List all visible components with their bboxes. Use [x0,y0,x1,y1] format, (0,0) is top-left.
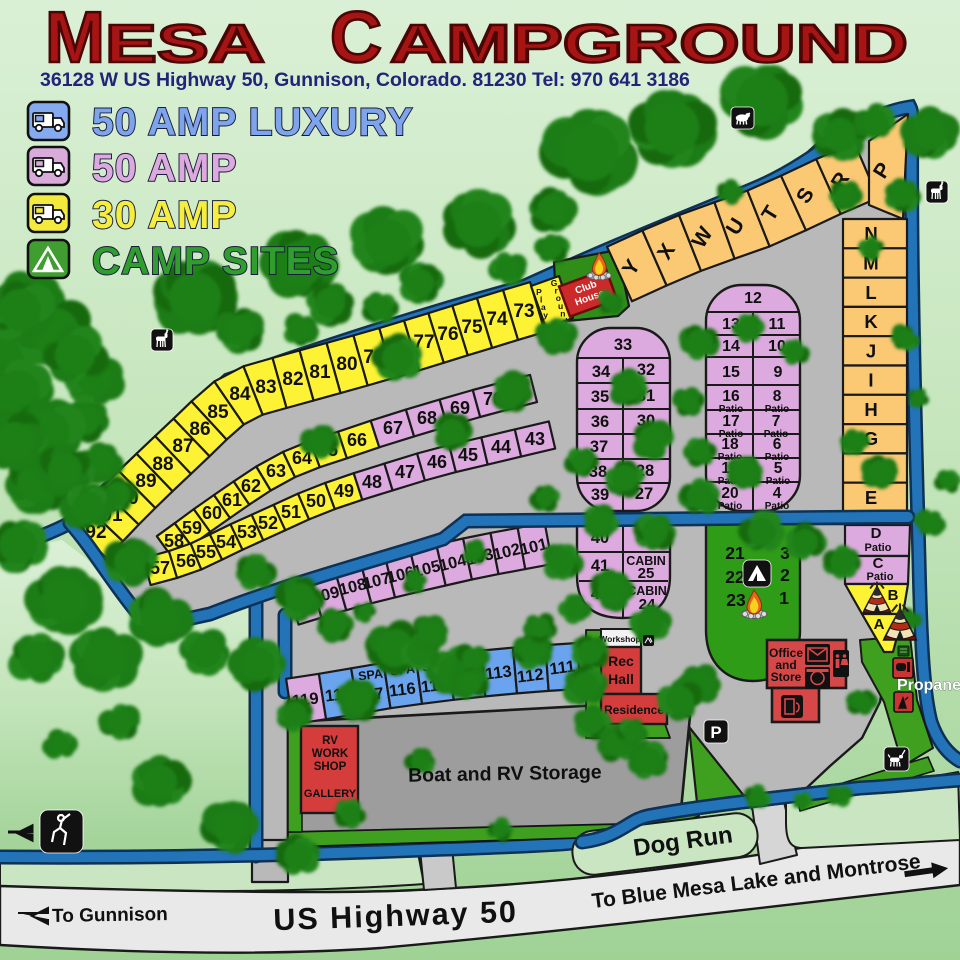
svg-text:17: 17 [722,413,739,430]
svg-text:M: M [45,0,107,78]
svg-text:8: 8 [773,388,782,405]
svg-text:Rec: Rec [608,653,634,669]
svg-text:9: 9 [774,364,783,381]
svg-text:46: 46 [427,452,447,472]
svg-text:87: 87 [172,436,193,457]
svg-text:Patio: Patio [867,571,894,583]
svg-text:39: 39 [591,486,609,504]
svg-text:60: 60 [202,503,222,523]
svg-text:84: 84 [229,384,251,405]
svg-text:89: 89 [135,471,156,492]
svg-text:23: 23 [726,590,746,610]
svg-text:35: 35 [591,388,609,406]
svg-text:45: 45 [458,445,478,465]
svg-text:66: 66 [347,430,367,450]
svg-text:33: 33 [614,336,632,354]
svg-text:30 AMP: 30 AMP [92,194,237,237]
svg-text:GALLERY: GALLERY [304,788,357,800]
svg-text:20: 20 [721,485,738,502]
svg-text:C: C [330,0,382,78]
svg-text:76: 76 [437,324,458,345]
svg-text:34: 34 [592,363,611,381]
svg-text:61: 61 [222,490,242,510]
svg-text:12: 12 [744,290,762,307]
svg-text:4: 4 [773,485,782,502]
svg-text:67: 67 [383,418,403,438]
svg-text:y: y [543,310,548,320]
svg-text:21: 21 [725,543,745,563]
svg-text:E: E [865,487,877,508]
svg-text:AMPGROUND: AMPGROUND [390,14,908,74]
svg-text:18: 18 [721,436,739,453]
svg-text:P: P [710,723,721,742]
svg-text:83: 83 [255,377,276,398]
svg-text:22: 22 [725,567,745,587]
svg-text:J: J [866,340,876,361]
svg-text:SHOP: SHOP [314,761,347,773]
svg-text:73: 73 [513,301,534,322]
svg-text:63: 63 [266,461,286,481]
svg-text:Patio: Patio [865,542,892,554]
svg-text:A: A [874,616,885,633]
svg-text:43: 43 [525,429,545,449]
svg-text:14: 14 [722,338,740,355]
svg-text:5: 5 [774,460,783,477]
svg-text:44: 44 [491,437,511,457]
svg-text:50: 50 [306,491,326,511]
svg-text:Propane: Propane [897,677,960,694]
svg-text:56: 56 [176,551,196,571]
svg-text:ESA: ESA [105,14,265,74]
svg-text:To Gunnison: To Gunnison [52,904,168,927]
svg-text:68: 68 [417,408,437,428]
svg-text:81: 81 [309,362,331,383]
svg-text:Patio: Patio [718,501,742,512]
svg-text:51: 51 [281,502,301,522]
svg-text:L: L [865,282,876,303]
svg-text:11: 11 [769,316,786,333]
svg-text:25: 25 [638,565,655,582]
svg-text:36128 W US Highway 50, Gunniso: 36128 W US Highway 50, Gunnison, Colorad… [40,69,690,91]
svg-text:50 AMP: 50 AMP [92,147,237,190]
svg-text:85: 85 [207,402,229,423]
svg-text:47: 47 [395,462,415,482]
svg-text:Residence: Residence [604,703,664,717]
svg-text:36: 36 [591,413,609,431]
svg-text:6: 6 [773,436,782,453]
svg-text:2: 2 [780,565,790,585]
svg-text:50 AMP LUXURY: 50 AMP LUXURY [92,101,413,144]
svg-text:62: 62 [241,476,261,496]
svg-text:RV: RV [322,735,338,747]
svg-text:H: H [864,399,877,420]
svg-text:80: 80 [336,354,357,375]
svg-text:7: 7 [772,413,781,430]
svg-text:I: I [868,370,873,391]
svg-text:Patio: Patio [765,501,789,512]
svg-text:82: 82 [282,369,303,390]
svg-text:55: 55 [196,542,216,562]
svg-text:WORK: WORK [312,748,349,760]
svg-text:75: 75 [461,317,483,338]
svg-text:Boat and RV Storage: Boat and RV Storage [408,761,602,786]
svg-text:C: C [873,555,884,572]
svg-text:53: 53 [237,522,257,542]
svg-text:D: D [871,525,882,542]
svg-text:48: 48 [362,472,382,492]
svg-text:K: K [864,311,878,332]
svg-text:Hall: Hall [608,671,634,687]
svg-text:CAMP SITES: CAMP SITES [92,240,340,283]
svg-text:116: 116 [388,679,417,700]
svg-text:16: 16 [722,388,740,405]
svg-text:1: 1 [779,588,789,608]
svg-text:52: 52 [258,513,278,533]
svg-text:59: 59 [182,518,202,538]
svg-text:15: 15 [722,364,740,381]
svg-text:Store: Store [771,670,802,684]
svg-text:B: B [888,587,899,604]
svg-text:54: 54 [216,532,236,552]
svg-text:74: 74 [486,309,508,330]
svg-text:49: 49 [334,481,354,501]
